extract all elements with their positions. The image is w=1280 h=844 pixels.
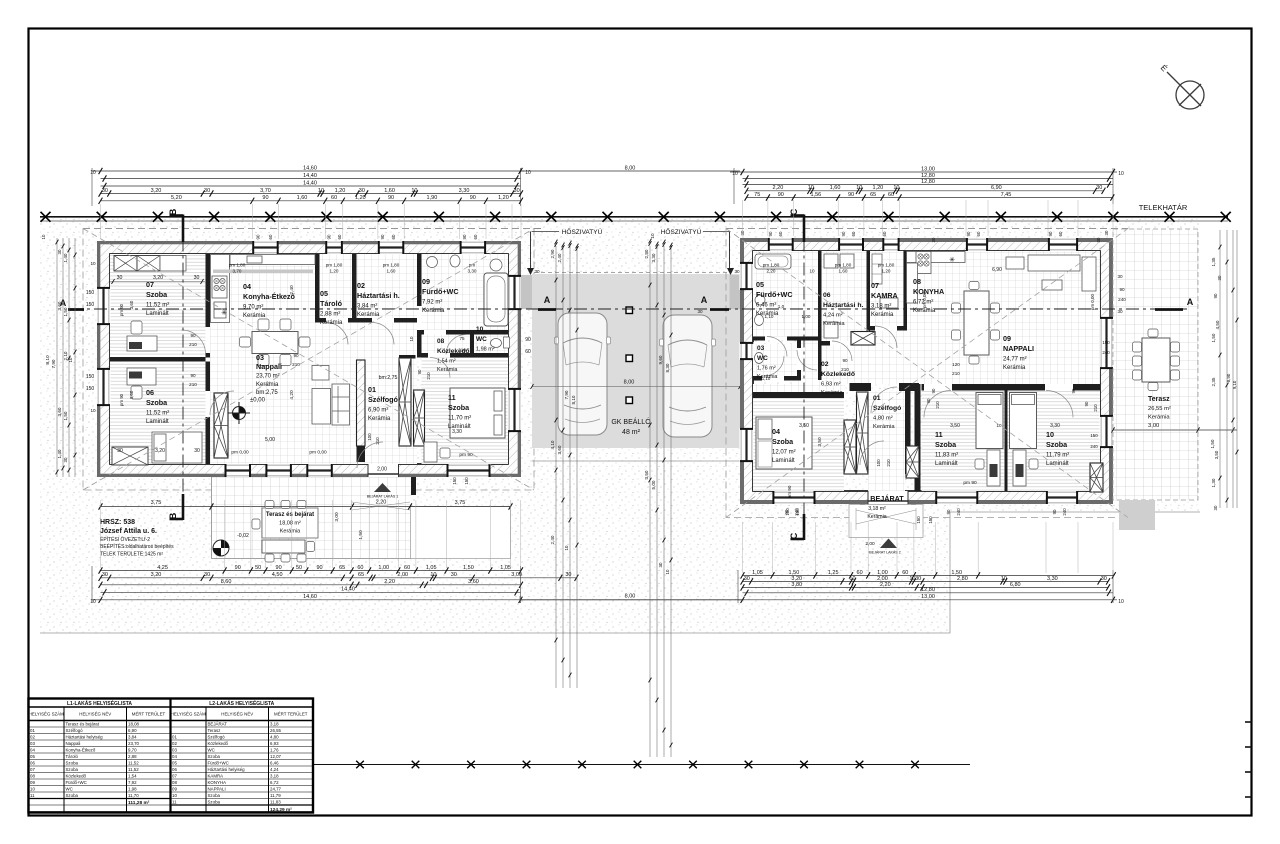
svg-text:60: 60 <box>473 234 478 239</box>
svg-text:150: 150 <box>928 516 933 524</box>
svg-text:pm 90: pm 90 <box>787 485 792 498</box>
svg-text:90: 90 <box>1119 287 1125 292</box>
svg-text:5,00: 5,00 <box>651 480 656 489</box>
svg-text:4,24 m²: 4,24 m² <box>823 313 843 319</box>
svg-text:24,77: 24,77 <box>270 787 282 792</box>
svg-text:1,20: 1,20 <box>882 269 891 274</box>
svg-text:Kerámia: Kerámia <box>1148 415 1170 421</box>
svg-text:11,52 m²: 11,52 m² <box>146 411 169 417</box>
svg-text:Kerámia: Kerámia <box>1003 365 1026 371</box>
svg-text:90: 90 <box>235 565 241 571</box>
svg-text:08: 08 <box>913 277 921 286</box>
svg-text:C: C <box>789 532 799 539</box>
svg-text:pm 1,80: pm 1,80 <box>229 263 246 268</box>
svg-text:Kerámia: Kerámia <box>873 424 895 430</box>
svg-text:05: 05 <box>756 280 764 289</box>
svg-text:3,20: 3,20 <box>151 572 162 578</box>
svg-text:A: A <box>1187 297 1194 307</box>
svg-text:Konyha-Étkező: Konyha-Étkező <box>66 748 96 753</box>
svg-text:2,88 m²: 2,88 m² <box>320 312 340 318</box>
svg-text:210: 210 <box>189 342 197 347</box>
svg-text:30: 30 <box>63 457 68 462</box>
svg-text:30: 30 <box>915 576 921 582</box>
svg-text:1,00: 1,00 <box>802 314 811 319</box>
svg-text:09: 09 <box>422 277 430 286</box>
svg-text:02: 02 <box>30 735 35 740</box>
svg-text:2,80: 2,80 <box>957 576 968 582</box>
svg-text:75: 75 <box>754 192 760 198</box>
svg-text:210: 210 <box>375 437 380 445</box>
svg-text:111,28 m²: 111,28 m² <box>128 800 150 806</box>
svg-text:1,05: 1,05 <box>500 565 511 571</box>
svg-text:3,20: 3,20 <box>155 448 165 454</box>
svg-text:30: 30 <box>117 448 123 454</box>
svg-text:210: 210 <box>886 459 891 467</box>
svg-text:Szoba: Szoba <box>208 754 221 759</box>
svg-text:Kerámia: Kerámia <box>368 416 391 422</box>
svg-text:18,08 m²: 18,08 m² <box>279 521 301 527</box>
svg-text:90: 90 <box>931 388 936 393</box>
svg-text:TELEK TERÜLETE:1425 m²: TELEK TERÜLETE:1425 m² <box>100 551 163 558</box>
svg-text:3,70: 3,70 <box>233 269 242 274</box>
svg-text:60: 60 <box>268 234 273 239</box>
svg-text:04: 04 <box>243 282 251 291</box>
svg-text:1,20: 1,20 <box>873 185 884 191</box>
svg-text:14,60: 14,60 <box>303 165 317 171</box>
svg-text:50: 50 <box>296 565 302 571</box>
svg-text:10: 10 <box>68 357 73 362</box>
svg-text:1,20: 1,20 <box>330 269 339 274</box>
svg-text:6,46 m²: 6,46 m² <box>756 303 776 309</box>
svg-text:Háztartási h.: Háztartási h. <box>357 291 400 300</box>
svg-text:60: 60 <box>857 570 863 576</box>
svg-text:150: 150 <box>86 374 95 380</box>
svg-text:150: 150 <box>452 477 457 485</box>
svg-text:60: 60 <box>404 565 410 571</box>
svg-text:KONYHA: KONYHA <box>913 287 944 296</box>
svg-text:90: 90 <box>842 358 848 363</box>
svg-text:01: 01 <box>30 728 35 733</box>
svg-text:NAPPALI: NAPPALI <box>208 787 226 792</box>
svg-text:1,50: 1,50 <box>358 530 364 540</box>
svg-text:BEJÁRAT: BEJÁRAT <box>208 722 228 727</box>
svg-text:3,60: 3,60 <box>129 390 134 399</box>
svg-text:2,00: 2,00 <box>397 572 408 578</box>
svg-text:10: 10 <box>90 261 96 266</box>
svg-text:30: 30 <box>565 572 571 578</box>
svg-text:100: 100 <box>367 433 372 441</box>
svg-text:30: 30 <box>744 576 750 582</box>
svg-text:1,98: 1,98 <box>128 787 137 792</box>
svg-text:30: 30 <box>359 188 365 194</box>
svg-text:150: 150 <box>86 386 95 392</box>
svg-text:05: 05 <box>30 754 35 759</box>
svg-text:30: 30 <box>534 269 540 274</box>
svg-text:±0,00: ±0,00 <box>250 398 266 404</box>
svg-text:Fürdő+WC: Fürdő+WC <box>208 761 229 766</box>
svg-text:240: 240 <box>1102 350 1110 355</box>
svg-text:pm 0,00: pm 0,00 <box>231 450 249 456</box>
svg-text:7,92 m²: 7,92 m² <box>422 300 442 306</box>
svg-text:26,55: 26,55 <box>270 728 282 733</box>
svg-text:6,90: 6,90 <box>991 185 1002 191</box>
svg-text:90: 90 <box>190 333 196 338</box>
svg-text:10: 10 <box>41 234 46 239</box>
svg-text:90: 90 <box>778 192 784 198</box>
svg-text:Fürdő+WC: Fürdő+WC <box>756 290 793 299</box>
svg-text:150: 150 <box>86 302 95 308</box>
svg-text:Háztartási helyiség: Háztartási helyiség <box>208 767 246 772</box>
svg-text:1,60: 1,60 <box>839 269 848 274</box>
svg-text:30: 30 <box>194 448 200 454</box>
svg-text:2,35: 2,35 <box>1211 377 1216 386</box>
svg-text:90: 90 <box>316 565 322 571</box>
svg-text:3,18 m²: 3,18 m² <box>868 506 886 512</box>
svg-text:12,07 m²: 12,07 m² <box>772 450 796 456</box>
svg-text:Közlekedő: Közlekedő <box>66 774 87 779</box>
svg-text:30: 30 <box>102 188 108 194</box>
svg-text:József Attila u. 6.: József Attila u. 6. <box>100 528 157 535</box>
svg-text:8,60: 8,60 <box>221 579 232 585</box>
svg-text:90: 90 <box>470 195 476 201</box>
svg-text:08: 08 <box>437 338 445 345</box>
svg-text:Laminált: Laminált <box>146 419 169 425</box>
svg-text:09: 09 <box>30 780 35 785</box>
svg-text:Közlekedő: Közlekedő <box>821 371 855 378</box>
svg-text:13,00: 13,00 <box>921 594 935 600</box>
svg-text:1,25: 1,25 <box>828 570 839 576</box>
svg-text:2,20: 2,20 <box>376 500 387 506</box>
svg-text:HŐSZIVATYÚ: HŐSZIVATYÚ <box>562 227 603 236</box>
svg-text:Fürdő+WC: Fürdő+WC <box>66 780 87 785</box>
svg-text:1,76 m²: 1,76 m² <box>757 366 776 372</box>
svg-text:2,88: 2,88 <box>128 754 137 759</box>
svg-text:10: 10 <box>650 233 655 239</box>
svg-text:150: 150 <box>916 516 921 524</box>
svg-text:9,70: 9,70 <box>128 748 137 753</box>
svg-text:9,10: 9,10 <box>1232 380 1237 389</box>
svg-text:14,60: 14,60 <box>303 594 317 600</box>
svg-text:60: 60 <box>888 192 894 198</box>
svg-text:Fürdő+WC: Fürdő+WC <box>422 287 459 296</box>
svg-text:4,50: 4,50 <box>272 572 283 578</box>
svg-text:12,07: 12,07 <box>270 754 282 759</box>
svg-text:9,60: 9,60 <box>658 355 663 364</box>
svg-text:11,52: 11,52 <box>128 767 139 772</box>
svg-text:10: 10 <box>1118 171 1124 177</box>
svg-text:1,30: 1,30 <box>1211 478 1216 487</box>
svg-text:90: 90 <box>841 231 846 236</box>
svg-text:90: 90 <box>462 234 467 239</box>
svg-text:90: 90 <box>1084 401 1089 406</box>
svg-text:Terasz: Terasz <box>208 728 221 733</box>
svg-text:pm 90: pm 90 <box>119 393 124 406</box>
svg-text:240: 240 <box>1118 297 1126 302</box>
svg-text:06: 06 <box>30 761 35 766</box>
svg-text:1,20: 1,20 <box>355 195 366 201</box>
svg-text:11,79: 11,79 <box>270 793 281 798</box>
svg-text:Szoba: Szoba <box>66 793 79 798</box>
svg-text:30: 30 <box>734 269 740 274</box>
svg-text:60: 60 <box>357 565 363 571</box>
svg-text:3,70: 3,70 <box>260 188 271 194</box>
svg-text:09: 09 <box>1003 334 1011 343</box>
svg-text:7,45: 7,45 <box>1001 192 1012 198</box>
svg-text:6,46: 6,46 <box>270 761 279 766</box>
svg-text:90: 90 <box>276 565 282 571</box>
svg-text:2,20: 2,20 <box>767 269 776 274</box>
svg-text:Kerámia: Kerámia <box>871 312 894 318</box>
svg-text:3,18: 3,18 <box>270 722 279 727</box>
svg-text:1,05: 1,05 <box>752 570 763 576</box>
svg-text:Szoba: Szoba <box>1046 440 1068 449</box>
svg-text:1,20: 1,20 <box>335 188 346 194</box>
svg-text:4,25: 4,25 <box>157 565 168 571</box>
svg-text:90: 90 <box>768 231 773 236</box>
svg-text:4,80: 4,80 <box>270 735 279 740</box>
svg-text:3,00: 3,00 <box>334 512 340 522</box>
svg-text:Szoba: Szoba <box>448 403 470 412</box>
svg-text:8,00: 8,00 <box>624 380 635 386</box>
svg-text:bm:2,75: bm:2,75 <box>379 375 398 381</box>
svg-text:8,10: 8,10 <box>571 395 576 404</box>
svg-text:WC: WC <box>757 355 768 362</box>
svg-text:4,80 m²: 4,80 m² <box>873 416 893 422</box>
svg-text:10: 10 <box>90 408 96 413</box>
svg-text:01: 01 <box>368 385 376 394</box>
svg-text:3,30: 3,30 <box>1047 576 1058 582</box>
svg-text:210: 210 <box>952 371 960 376</box>
svg-text:65: 65 <box>339 565 345 571</box>
svg-text:30: 30 <box>451 572 457 578</box>
svg-text:3,60: 3,60 <box>57 301 62 310</box>
svg-text:03: 03 <box>256 353 264 362</box>
svg-text:8,30: 8,30 <box>665 363 670 372</box>
svg-text:11,79 m²: 11,79 m² <box>1046 453 1069 459</box>
svg-text:07: 07 <box>871 281 879 290</box>
svg-text:30: 30 <box>1096 237 1101 242</box>
svg-text:Laminált: Laminált <box>935 461 958 467</box>
svg-text:05: 05 <box>320 289 328 298</box>
svg-text:Laminált: Laminált <box>772 458 795 464</box>
svg-text:1,40: 1,40 <box>57 449 62 458</box>
svg-text:3,20: 3,20 <box>151 188 162 194</box>
svg-text:30: 30 <box>658 562 663 567</box>
svg-text:BEÉPÍTÉS:oldalhatáros beépítés: BEÉPÍTÉS:oldalhatáros beépítés <box>100 543 174 550</box>
svg-text:-0,02: -0,02 <box>237 533 249 539</box>
svg-text:1,60: 1,60 <box>387 269 396 274</box>
svg-text:pm 90: pm 90 <box>119 303 124 316</box>
svg-text:6,80: 6,80 <box>1010 582 1021 588</box>
svg-text:3,60: 3,60 <box>129 300 134 309</box>
svg-text:11,52 m²: 11,52 m² <box>146 303 169 309</box>
svg-text:90: 90 <box>946 509 951 514</box>
svg-text:2,90: 2,90 <box>550 249 555 258</box>
svg-text:30: 30 <box>1117 274 1123 279</box>
svg-text:10: 10 <box>732 171 738 177</box>
svg-text:60: 60 <box>331 195 337 201</box>
svg-text:90: 90 <box>327 234 332 239</box>
svg-text:10: 10 <box>809 269 815 274</box>
svg-text:90: 90 <box>848 192 854 198</box>
svg-text:07: 07 <box>30 767 35 772</box>
svg-text:02: 02 <box>172 741 177 746</box>
svg-text:11: 11 <box>935 430 943 439</box>
svg-text:MÉRT TERÜLET: MÉRT TERÜLET <box>274 712 308 717</box>
svg-text:L2-LAKÁS HELYISÉGLISTA: L2-LAKÁS HELYISÉGLISTA <box>209 699 274 707</box>
svg-text:11,83: 11,83 <box>270 800 281 805</box>
svg-text:210: 210 <box>426 372 431 380</box>
svg-text:1,98 m²: 1,98 m² <box>476 347 495 353</box>
svg-text:90: 90 <box>1048 231 1053 236</box>
svg-text:1,10: 1,10 <box>765 314 774 319</box>
svg-text:11: 11 <box>172 800 177 805</box>
svg-text:06: 06 <box>172 767 177 772</box>
svg-text:5,20: 5,20 <box>171 195 182 201</box>
svg-text:Terasz és bejárat: Terasz és bejárat <box>266 512 314 518</box>
svg-text:Nappali: Nappali <box>256 362 282 371</box>
svg-text:1,90: 1,90 <box>427 195 438 201</box>
svg-text:30: 30 <box>102 572 108 578</box>
svg-text:1,60: 1,60 <box>384 188 395 194</box>
svg-text:Tároló: Tároló <box>320 299 343 308</box>
svg-text:Terasz: Terasz <box>1148 396 1170 403</box>
svg-text:30: 30 <box>204 188 210 194</box>
svg-text:11: 11 <box>30 793 35 798</box>
svg-text:240: 240 <box>1062 508 1067 516</box>
svg-text:10: 10 <box>30 787 35 792</box>
svg-text:pm 1,80: pm 1,80 <box>878 263 895 268</box>
svg-text:Szélfogó: Szélfogó <box>873 405 901 412</box>
svg-text:90: 90 <box>525 337 531 343</box>
svg-text:1,00: 1,00 <box>378 565 389 571</box>
svg-text:23,70: 23,70 <box>128 741 140 746</box>
svg-text:12,80: 12,80 <box>921 179 935 185</box>
svg-text:10: 10 <box>1118 599 1124 605</box>
svg-text:2,20: 2,20 <box>773 185 784 191</box>
svg-text:90: 90 <box>784 509 789 514</box>
svg-text:A: A <box>544 295 551 305</box>
svg-text:90: 90 <box>1052 509 1057 514</box>
svg-text:3,75: 3,75 <box>455 500 466 506</box>
svg-text:8,00: 8,00 <box>625 165 636 171</box>
svg-text:124,29 m²: 124,29 m² <box>270 807 292 813</box>
svg-text:18,08: 18,08 <box>128 722 140 727</box>
svg-text:bm:2,75: bm:2,75 <box>256 390 278 396</box>
svg-text:Szoba: Szoba <box>66 761 79 766</box>
svg-text:B: B <box>168 208 178 215</box>
svg-text:60: 60 <box>976 231 981 236</box>
svg-text:02: 02 <box>821 361 829 368</box>
svg-text:30: 30 <box>697 309 703 314</box>
svg-text:10: 10 <box>90 599 96 605</box>
svg-text:6,93 m²: 6,93 m² <box>821 382 841 388</box>
svg-text:KAMRA: KAMRA <box>871 291 898 300</box>
svg-text:8,00: 8,00 <box>625 594 636 600</box>
svg-text:2,40: 2,40 <box>557 253 562 262</box>
svg-text:6,90: 6,90 <box>128 728 137 733</box>
svg-text:HELYISÉG SZÁM: HELYISÉG SZÁM <box>171 712 206 717</box>
svg-text:150: 150 <box>1102 340 1110 345</box>
svg-text:Szélfogó: Szélfogó <box>66 728 84 733</box>
svg-text:60: 60 <box>851 231 856 236</box>
svg-text:Konyha-Étkező: Konyha-Étkező <box>243 292 296 301</box>
svg-text:11,52: 11,52 <box>128 761 139 766</box>
svg-text:pm 90: pm 90 <box>459 452 473 458</box>
svg-text:03: 03 <box>30 741 35 746</box>
svg-text:60: 60 <box>902 570 908 576</box>
svg-text:Háztartási helyiség: Háztartási helyiség <box>66 735 104 740</box>
svg-text:WC: WC <box>208 748 215 753</box>
svg-text:KAMRA: KAMRA <box>208 774 224 779</box>
svg-text:30: 30 <box>1096 185 1102 191</box>
svg-text:Szoba: Szoba <box>66 767 79 772</box>
svg-text:pm 1,80: pm 1,80 <box>326 263 343 268</box>
svg-text:Kerámia: Kerámia <box>867 514 886 520</box>
svg-text:1,50: 1,50 <box>463 565 474 571</box>
svg-text:3,30: 3,30 <box>468 269 477 274</box>
svg-text:50: 50 <box>255 565 261 571</box>
svg-text:90: 90 <box>293 353 299 358</box>
svg-text:3,30: 3,30 <box>651 253 656 262</box>
svg-text:1,35: 1,35 <box>1211 257 1216 266</box>
svg-text:210: 210 <box>458 348 466 353</box>
svg-text:26,55 m²: 26,55 m² <box>1148 406 1171 412</box>
svg-text:90: 90 <box>1213 293 1218 298</box>
svg-text:04: 04 <box>30 748 35 753</box>
svg-text:HRSZ: 538: HRSZ: 538 <box>100 519 135 526</box>
svg-text:01: 01 <box>873 395 881 402</box>
svg-text:4,50: 4,50 <box>1215 320 1220 329</box>
svg-text:Háztartási h.: Háztartási h. <box>823 302 864 309</box>
svg-text:13,00: 13,00 <box>921 166 935 172</box>
svg-text:3,84: 3,84 <box>128 735 137 740</box>
svg-text:Szoba: Szoba <box>935 440 957 449</box>
svg-text:3,30: 3,30 <box>1050 423 1060 429</box>
svg-text:1,50: 1,50 <box>63 307 68 316</box>
svg-text:A: A <box>701 295 708 305</box>
svg-text:30: 30 <box>514 188 520 194</box>
svg-text:1,50: 1,50 <box>63 411 68 420</box>
svg-text:90: 90 <box>256 234 261 239</box>
svg-text:✳: ✳ <box>949 256 955 264</box>
svg-text:Nappali: Nappali <box>66 741 81 746</box>
svg-text:90: 90 <box>1071 388 1076 393</box>
svg-text:05: 05 <box>172 761 177 766</box>
svg-text:3,00: 3,00 <box>1148 423 1159 429</box>
svg-text:HELYISÉG NÉV: HELYISÉG NÉV <box>221 712 253 717</box>
svg-text:1,0: 1,0 <box>778 304 785 309</box>
svg-text:90: 90 <box>380 234 385 239</box>
svg-text:90: 90 <box>262 195 268 201</box>
svg-text:BEJÁRAT: BEJÁRAT <box>870 494 904 503</box>
svg-text:3,80: 3,80 <box>791 582 802 588</box>
svg-text:1,50: 1,50 <box>1211 333 1216 342</box>
svg-text:Kerámia: Kerámia <box>823 321 845 327</box>
svg-text:01: 01 <box>172 735 177 740</box>
svg-text:pm 0,00: pm 0,00 <box>309 450 327 456</box>
svg-text:60: 60 <box>525 349 531 355</box>
svg-text:48 m²: 48 m² <box>622 429 641 436</box>
svg-text:210: 210 <box>292 362 300 367</box>
svg-text:Kerámia: Kerámia <box>243 313 266 319</box>
svg-text:30: 30 <box>931 237 936 242</box>
svg-text:24,77 m²: 24,77 m² <box>1003 357 1027 363</box>
svg-text:1,10: 1,10 <box>762 376 771 381</box>
svg-text:WC: WC <box>66 787 73 792</box>
svg-text:06: 06 <box>823 292 831 299</box>
svg-text:210: 210 <box>1093 404 1098 412</box>
